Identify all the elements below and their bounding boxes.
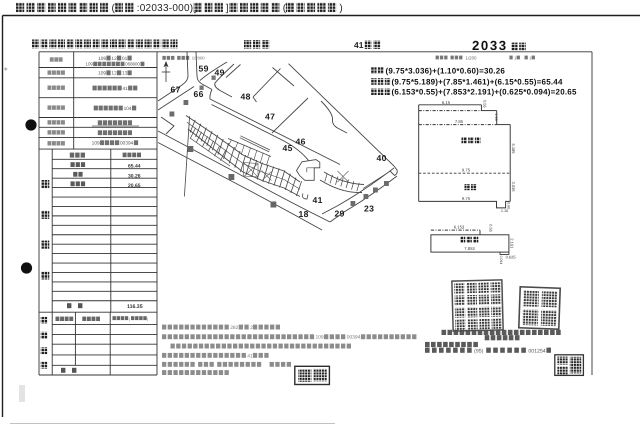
svg-text:9.75: 9.75 [462, 196, 471, 201]
svg-text:6.153: 6.153 [454, 225, 465, 230]
svg-text:0.55: 0.55 [483, 100, 487, 107]
svg-text:0.60: 0.60 [506, 202, 510, 209]
svg-text:29: 29 [335, 209, 345, 219]
svg-text:1.46: 1.46 [494, 113, 498, 120]
svg-text:): ) [339, 3, 342, 14]
svg-text:2: 2 [250, 325, 253, 331]
svg-text:48: 48 [241, 92, 251, 102]
svg-text:40: 40 [377, 153, 387, 163]
svg-text:0.625: 0.625 [506, 254, 517, 259]
svg-text:068800: 068800 [125, 62, 140, 67]
svg-text:46: 46 [296, 136, 306, 146]
svg-text:00394: 00394 [347, 335, 361, 341]
svg-text:6.15: 6.15 [442, 100, 451, 105]
svg-text:109: 109 [86, 62, 94, 67]
svg-text:13: 13 [122, 71, 128, 77]
svg-text:20.65: 20.65 [128, 183, 141, 189]
svg-text:]: ] [226, 3, 229, 14]
svg-text:0.094: 0.094 [499, 256, 503, 265]
svg-text:(9.75*3.036)+(1.10*0.60)=30.26: (9.75*3.036)+(1.10*0.60)=30.26 [386, 67, 506, 76]
svg-text:47: 47 [265, 112, 275, 122]
svg-text:49: 49 [215, 68, 225, 78]
svg-text:109: 109 [98, 71, 106, 77]
svg-text:30.26: 30.26 [128, 173, 141, 179]
svg-text:7.853: 7.853 [464, 246, 475, 251]
svg-text:1/2000: 1/2000 [192, 56, 205, 61]
svg-text:2.191: 2.191 [509, 238, 514, 249]
svg-text:2033: 2033 [472, 38, 508, 53]
svg-text:12: 12 [111, 56, 117, 62]
svg-text:67: 67 [171, 85, 181, 95]
svg-text:1.10: 1.10 [501, 209, 508, 213]
svg-text::02033-000)[: :02033-000)[ [137, 3, 197, 14]
svg-text:45: 45 [283, 143, 293, 153]
svg-text:1/200: 1/200 [466, 55, 478, 60]
svg-text:12: 12 [111, 71, 117, 77]
svg-text:(95): (95) [474, 348, 483, 354]
svg-text:18: 18 [299, 209, 309, 219]
svg-text:5.189: 5.189 [511, 144, 516, 155]
svg-text:23: 23 [364, 204, 374, 214]
svg-text:65.44: 65.44 [128, 164, 141, 170]
svg-text:(9.75*5.189)+(7.85*1.461)+(6.1: (9.75*5.189)+(7.85*1.461)+(6.15*0.55)=65… [392, 77, 563, 86]
svg-text:59: 59 [199, 64, 209, 74]
svg-text:66: 66 [194, 89, 204, 99]
svg-text:41: 41 [123, 86, 129, 92]
svg-text:0.55: 0.55 [489, 224, 493, 231]
svg-text:109: 109 [315, 335, 323, 341]
svg-text:104: 104 [124, 106, 132, 112]
svg-text:109: 109 [92, 141, 100, 147]
svg-text:41: 41 [354, 40, 364, 50]
svg-text:001254: 001254 [528, 348, 545, 354]
svg-text:116.35: 116.35 [127, 304, 143, 310]
svg-text:7.85: 7.85 [455, 119, 464, 124]
svg-text:41: 41 [313, 195, 323, 205]
svg-text:109: 109 [98, 56, 106, 62]
svg-text:00394: 00394 [120, 141, 134, 147]
svg-text:41: 41 [247, 353, 253, 359]
svg-text:3.036: 3.036 [511, 182, 516, 193]
svg-text:9.75: 9.75 [462, 168, 471, 173]
svg-text:282: 282 [230, 325, 238, 331]
svg-text:(6.153*0.55)+(7.853*2.191)+(0.: (6.153*0.55)+(7.853*2.191)+(0.625*0.094)… [392, 88, 577, 97]
